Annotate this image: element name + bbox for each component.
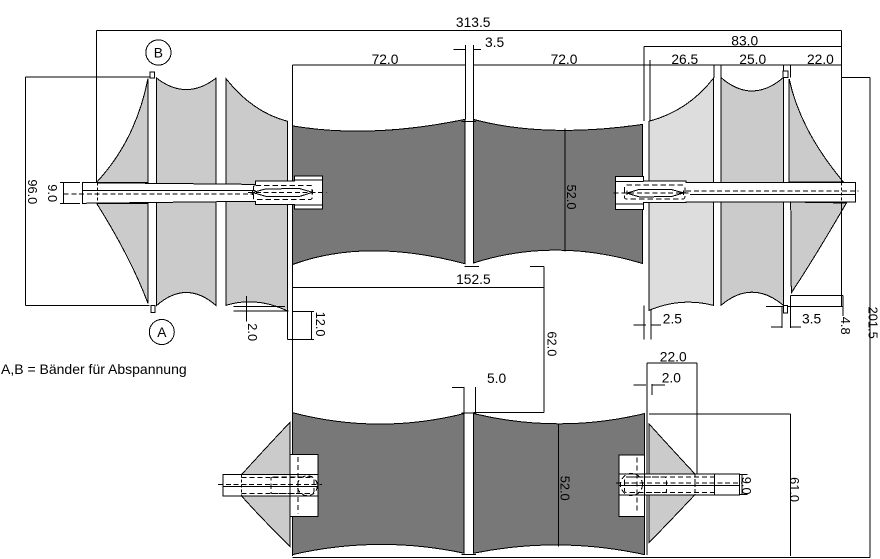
svg-text:152.5: 152.5 — [456, 272, 491, 287]
svg-text:22.0: 22.0 — [807, 52, 834, 67]
svg-text:83.0: 83.0 — [731, 33, 758, 48]
svg-text:9.0: 9.0 — [739, 477, 754, 495]
svg-text:12.0: 12.0 — [313, 312, 328, 337]
svg-text:72.0: 72.0 — [551, 52, 578, 67]
svg-text:62.0: 62.0 — [544, 331, 559, 356]
svg-text:3.5: 3.5 — [485, 35, 505, 50]
svg-text:5.0: 5.0 — [487, 371, 507, 386]
svg-text:22.0: 22.0 — [660, 350, 687, 365]
svg-text:A: A — [157, 325, 167, 340]
svg-text:61.0: 61.0 — [787, 477, 802, 502]
svg-text:2.5: 2.5 — [663, 312, 683, 327]
svg-text:52.0: 52.0 — [557, 476, 572, 501]
svg-text:2.0: 2.0 — [245, 323, 260, 341]
svg-text:52.0: 52.0 — [564, 185, 579, 210]
svg-text:313.5: 313.5 — [456, 15, 491, 30]
svg-text:B: B — [154, 45, 163, 60]
svg-text:2.0: 2.0 — [662, 370, 682, 385]
svg-text:72.0: 72.0 — [372, 52, 399, 67]
svg-text:201.5: 201.5 — [865, 307, 880, 339]
svg-text:A,B = Bänder für Abspannung: A,B = Bänder für Abspannung — [1, 361, 187, 377]
svg-text:25.0: 25.0 — [739, 52, 766, 67]
svg-text:26.5: 26.5 — [671, 52, 698, 67]
svg-text:96.0: 96.0 — [25, 179, 40, 204]
svg-text:9.0: 9.0 — [45, 184, 60, 202]
svg-text:4.8: 4.8 — [838, 317, 853, 335]
svg-text:3.5: 3.5 — [802, 312, 822, 327]
